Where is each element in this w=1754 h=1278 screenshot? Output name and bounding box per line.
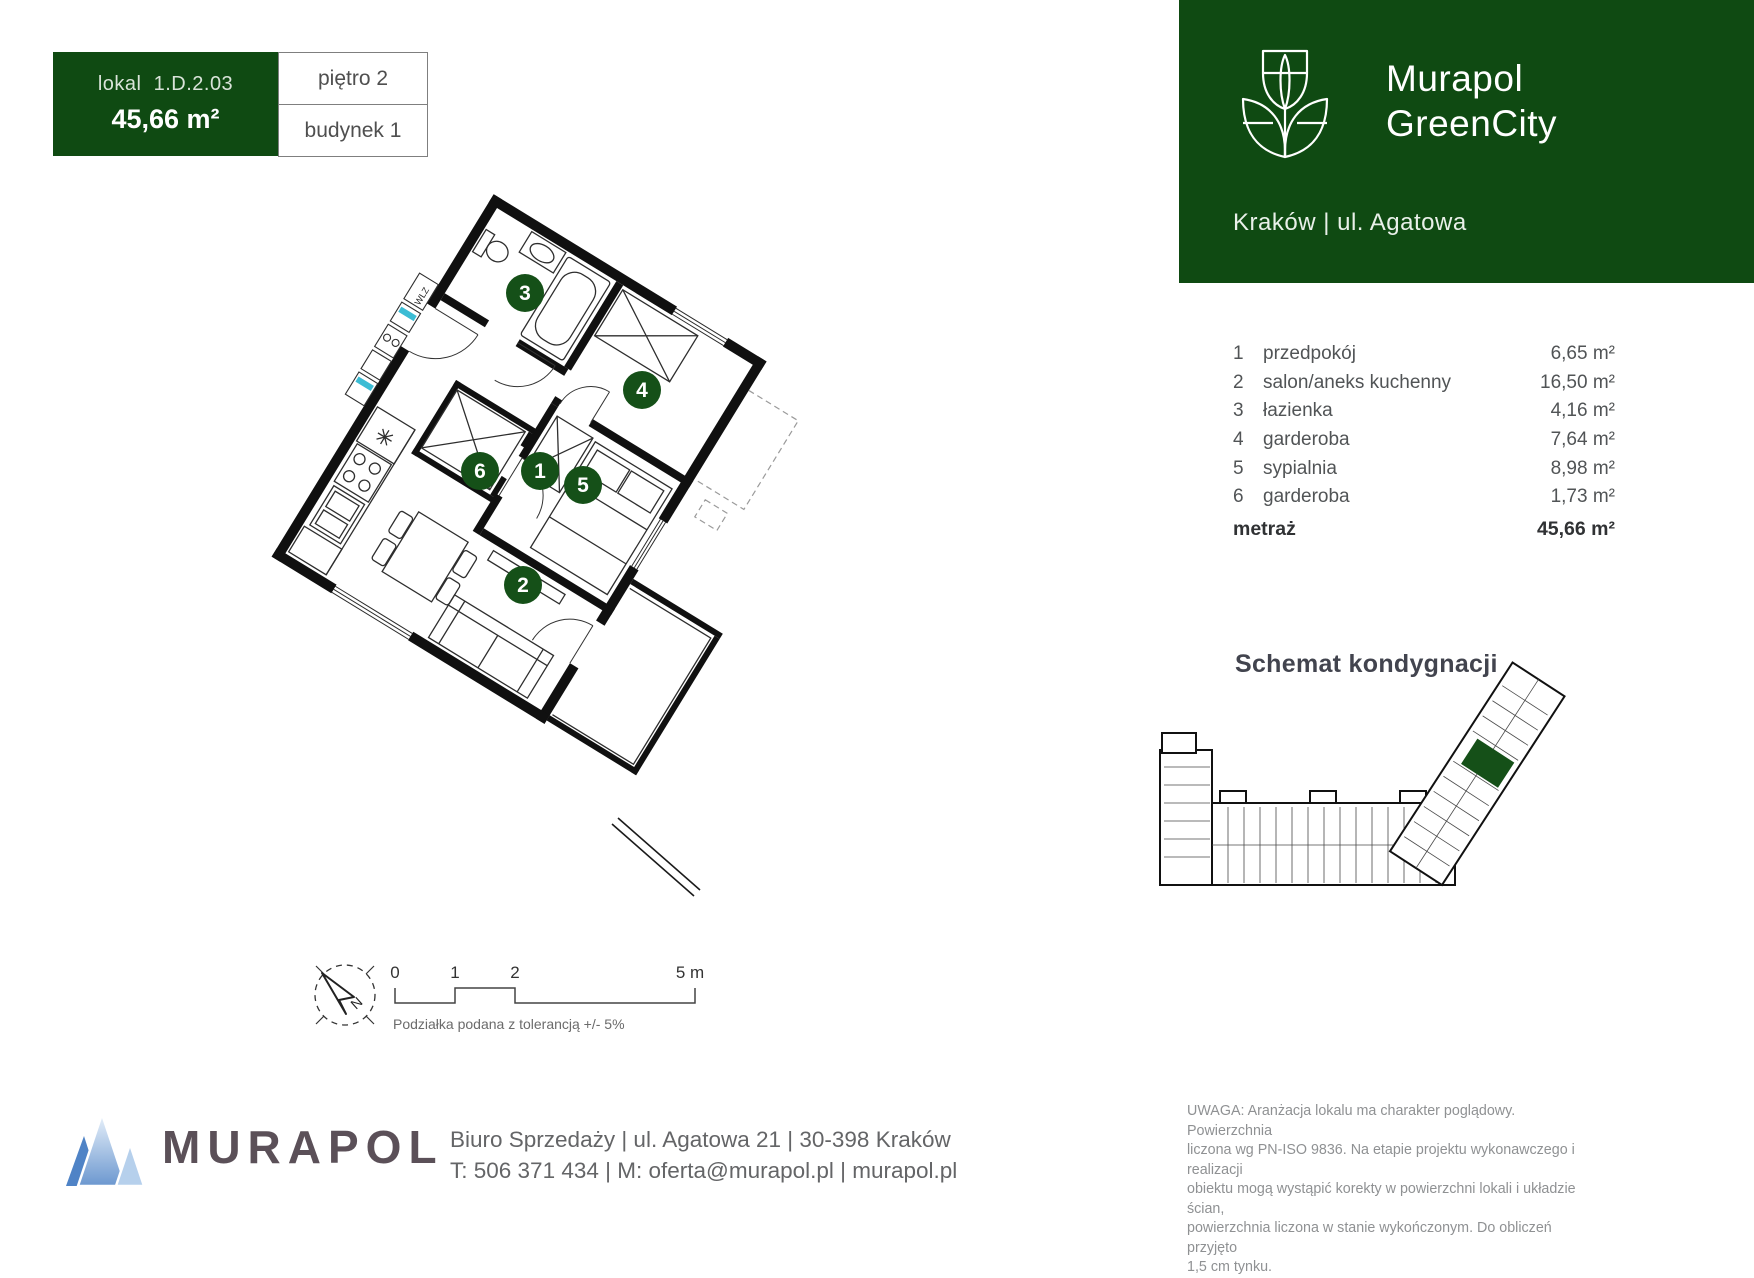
- scale-note: Podziałka podana z tolerancją +/- 5%: [393, 1016, 625, 1032]
- interior-walls: [347, 208, 762, 616]
- unit-code: 1.D.2.03: [154, 73, 234, 95]
- total-row: metraż 45,66 m²: [1233, 514, 1615, 546]
- building-schematic: [1160, 663, 1565, 885]
- room-area: 4,16 m²: [1551, 400, 1615, 422]
- room-name: salon/aneks kuchenny: [1263, 372, 1540, 394]
- building-label: budynek 1: [305, 119, 402, 143]
- table-row: 5 sypialnia 8,98 m²: [1233, 454, 1615, 483]
- room-badge: 4: [623, 371, 661, 409]
- room-area: 1,73 m²: [1551, 486, 1615, 508]
- room-no: 3: [1233, 400, 1263, 422]
- riser-cyan: [398, 307, 416, 322]
- room-badge: 2: [504, 566, 542, 604]
- table-row: 2 salon/aneks kuchenny 16,50 m²: [1233, 369, 1615, 398]
- table-row: 3 łazienka 4,16 m²: [1233, 397, 1615, 426]
- room-name: sypialnia: [1263, 458, 1551, 480]
- murapol-flower-icon: [1235, 45, 1335, 163]
- brand-name-line1: Murapol: [1386, 56, 1557, 101]
- neighbour-balcony-line: [612, 818, 700, 896]
- brand-name: Murapol GreenCity: [1386, 56, 1557, 146]
- footer-phone-email[interactable]: T: 506 371 434 | M: oferta@murapol.pl | …: [450, 1155, 957, 1186]
- floor-box: piętro 2: [278, 52, 428, 105]
- total-label: metraż: [1233, 518, 1537, 541]
- unit-code-line: lokal 1.D.2.03: [98, 73, 233, 96]
- svg-text:3: 3: [519, 282, 531, 305]
- svg-text:5 m: 5 m: [676, 963, 704, 982]
- svg-text:5: 5: [577, 474, 589, 497]
- footer-contact: Biuro Sprzedaży | ul. Agatowa 21 | 30-39…: [450, 1124, 957, 1186]
- total-area: 45,66 m²: [1537, 518, 1615, 541]
- unit-label: lokal: [98, 73, 142, 95]
- room-name: łazienka: [1263, 400, 1551, 422]
- building-box: budynek 1: [278, 104, 428, 157]
- svg-text:4: 4: [636, 379, 648, 402]
- riser-cyan: [355, 376, 373, 391]
- room-area: 8,98 m²: [1551, 458, 1615, 480]
- brand-location: Kraków | ul. Agatowa: [1233, 209, 1467, 237]
- room-area: 16,50 m²: [1540, 372, 1615, 394]
- room-badge: 1: [521, 452, 559, 490]
- door-arcs: [314, 292, 701, 664]
- rooms-table: 1 przedpokój 6,65 m² 2 salon/aneks kuche…: [1233, 340, 1615, 546]
- table-icon: [382, 512, 468, 602]
- floor-label: piętro 2: [318, 67, 388, 91]
- unit-card: lokal 1.D.2.03 45,66 m²: [53, 52, 278, 156]
- footer-address: Biuro Sprzedaży | ul. Agatowa 21 | 30-39…: [450, 1124, 957, 1155]
- room-no: 1: [1233, 343, 1263, 365]
- room-no: 6: [1233, 486, 1263, 508]
- murapol-logo-icon: [66, 1110, 154, 1190]
- room-no: 4: [1233, 429, 1263, 451]
- disclaimer-text: UWAGA: Aranżacja lokalu ma charakter pog…: [1187, 1102, 1587, 1278]
- room-badge: 3: [506, 274, 544, 312]
- svg-text:0: 0: [390, 963, 399, 982]
- scale-bar: 0 1 2 5 m: [390, 963, 704, 1003]
- table-row: 6 garderoba 1,73 m²: [1233, 483, 1615, 512]
- schematic-diagonal-wing: [1390, 663, 1565, 885]
- table-row: 1 przedpokój 6,65 m²: [1233, 340, 1615, 369]
- svg-text:1: 1: [534, 460, 546, 483]
- schematic-title: Schemat kondygnacji: [1235, 650, 1498, 679]
- room-no: 5: [1233, 458, 1263, 480]
- room-area: 7,64 m²: [1551, 429, 1615, 451]
- svg-text:6: 6: [474, 460, 486, 483]
- north-arrow-icon: [322, 973, 354, 1014]
- compass: N: [315, 965, 375, 1025]
- room-no: 2: [1233, 372, 1263, 394]
- brand-name-line2: GreenCity: [1386, 101, 1557, 146]
- svg-text:2: 2: [510, 963, 519, 982]
- room-name: przedpokój: [1263, 343, 1551, 365]
- vent-symbol: [374, 426, 396, 448]
- table-row: 4 garderoba 7,64 m²: [1233, 426, 1615, 455]
- svg-text:1: 1: [450, 963, 459, 982]
- room-name: garderoba: [1263, 429, 1551, 451]
- svg-text:2: 2: [517, 574, 529, 597]
- room-area: 6,65 m²: [1551, 343, 1615, 365]
- unit-area: 45,66 m²: [111, 104, 219, 135]
- murapol-wordmark: MURAPOL: [162, 1120, 444, 1174]
- room-badge: 5: [564, 466, 602, 504]
- room-badge: 6: [461, 452, 499, 490]
- room-name: garderoba: [1263, 486, 1551, 508]
